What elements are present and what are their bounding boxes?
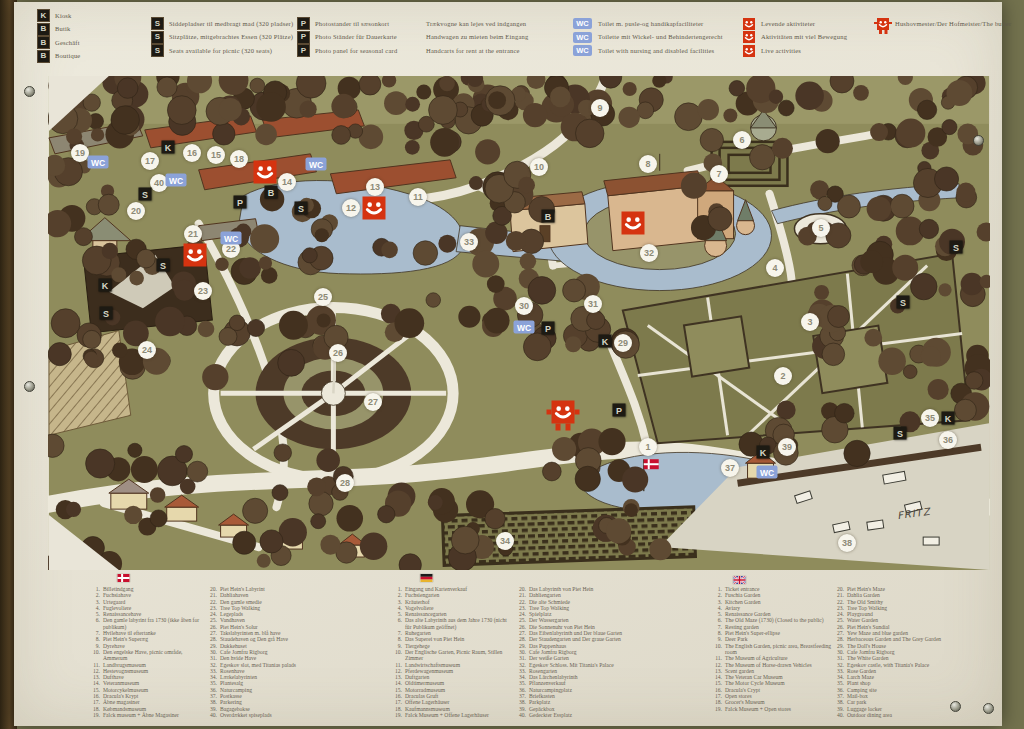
item-number: 6. [86,617,100,630]
screw [973,135,984,146]
butler-figure-icon [877,18,889,30]
legend-list-item: 40.Outdoor dining area [830,712,962,718]
smiley-activity-icon [743,45,755,57]
park-map-illustration [48,76,990,570]
item-number: 6. [388,617,402,630]
legend-label: Siddepladser til medbragt mad (320 plads… [169,21,293,28]
legend-row: PPhotostander til sæsonkort [298,17,397,31]
legend-row: Aktivitäten mit viel Bewegung [743,31,847,45]
legend-label: Live activities [761,48,801,55]
screw [950,701,961,712]
item-number: 40. [512,712,526,718]
smiley-activity-icon [743,31,755,43]
legend-label: Levende aktiviteter [761,21,815,28]
photographed-info-board: KKioskBButikBGeschäftBBoutique SSiddepla… [0,0,1024,729]
photo-icon: P [298,18,309,29]
legend-list-item: 10.The English Garden, picnic area, Brea… [708,643,834,656]
legend-row: WCToilette mit Wickel- und Behindertenge… [573,31,723,45]
legend-label: Butik [55,26,70,33]
shop-icon: B [38,24,49,35]
item-label: Outdoor dining area [847,712,892,718]
legend-row: BGeschäft [38,36,80,50]
shop-icon: B [38,51,49,62]
legend-list-item: 6.Das alte Labyrinth aus dem Jahre 1730 … [388,617,510,630]
item-number: 19. [708,706,722,712]
legend-list-item: 40.Gedeckter Essplatz [512,712,642,718]
legend-group-photo: PPhotostander til sæsonkortPPhoto Stände… [298,17,397,58]
legend-row: Handwagen zu mieten beim Eingang [420,31,528,45]
legend-row: BBoutique [38,50,80,64]
map-artwork [48,76,990,570]
seats-icon: S [152,18,163,29]
legend-label: Toilette mit Wickel- und Behindertengere… [598,34,723,41]
legend-label: Handwagen zu mieten beim Eingang [426,34,528,41]
uk-flag-icon [733,576,746,584]
screw [24,86,35,97]
legend-list-english-1-19: 1.Ticket entrance2.Fuschia Garden3.Kitch… [708,586,834,712]
legend-label: Photo Ständer für Dauerkarte [315,34,397,41]
legend-row-butler: Hushovmester/Der Hofmeister/The butler [877,17,1011,31]
legend-row: Handcarts for rent at the entrance [420,44,528,58]
wc-icon: WC [573,45,592,56]
photo-icon: P [298,45,309,56]
item-label: Den gamle labyrint fra 1730 (ikke åben f… [103,617,204,630]
legend-group-handcarts: Trækvogne kan lejes ved indgangenHandwag… [420,17,528,58]
legend-label: Seats available for picnic (320 seats) [169,48,272,55]
legend-list-item: 10.Den engelske Have, picnic område, Amm… [86,649,204,662]
legend-label: Photostander til sæsonkort [315,21,389,28]
item-number: 19. [388,712,402,718]
item-number: 10. [708,643,722,656]
legend-group-wc: WCToilet m. pusle-og handikapfaciliteter… [573,17,723,58]
legend-row: Levende aktiviteter [743,17,847,31]
smiley-activity-icon [743,18,755,30]
seats-icon: S [152,32,163,43]
item-number: 10. [86,649,100,662]
legend-label: Trækvogne kan lejes ved indgangen [426,21,526,28]
legend-label: Toilet with nursing and disabled facilit… [598,48,714,55]
item-number: 40. [830,712,844,718]
legend-row: Trækvogne kan lejes ved indgangen [420,17,528,31]
legend-label: Kiosk [55,13,72,20]
item-number: 10. [388,649,402,662]
legend-row: PPhoto Ständer für Dauerkarte [298,31,397,45]
legend-group-butler: Hushovmester/Der Hofmeister/The butler [877,17,1011,31]
legend-list-danish-20-40: 20.Piet Hein's Labyrint21.Dahliahaven22.… [203,586,331,718]
item-label: Den engelske Have, picnic område, Ammeru… [103,649,204,662]
screw [24,381,35,392]
seats-icon: S [152,45,163,56]
wc-icon: WC [573,18,592,29]
legend-label: Sitzplätze, mitgebrachtes Essen (320 Plä… [169,34,293,41]
legend-list-item: 10.Der Englische Garten, Picnic Raum, St… [388,649,510,662]
item-label: Falck Museum + Open stores [725,706,791,712]
item-number: 40. [203,712,217,718]
legend-label: Boutique [55,53,80,60]
legend-label: Geschäft [55,40,80,47]
legend-row: BButik [38,23,80,37]
legend-row: KKiosk [38,9,80,23]
legend-label: Toilet m. pusle-og handikapfaciliteter [598,21,703,28]
legend-list-german-20-40: 20.Das Labyrinth von Piet Hein21.Dahlien… [512,586,642,718]
legend-list-item: 19.Falck Museum + Open stores [708,706,834,712]
legend-list-english-20-40: 20.Piet Hein's Maze21.Dahlia Garden22.Th… [830,586,962,718]
legend-list-danish-1-19: 1.Billetindgang2.Fuchsiahave3.Urtegaard4… [86,586,204,718]
legend-list-item: 19.Falck museum + Åbne Magasiner [86,712,204,718]
legend-row: WCToilet with nursing and disabled facil… [573,44,723,58]
kiosk-icon: K [38,10,49,21]
item-label: The English Garden, picnic area, Breastf… [725,643,834,656]
item-label: Der Englische Garten, Picnic Raum, Still… [405,649,510,662]
legend-row: SSiddepladser til medbragt mad (320 plad… [152,17,293,31]
item-label: Das alte Labyrinth aus dem Jahre 1730 (n… [405,617,510,630]
screw [983,703,994,714]
legend-row: PPhoto panel for seasonal card [298,44,397,58]
item-label: Falck museum + Åbne Magasiner [103,712,179,718]
legend-label: Hushovmester/Der Hofmeister/The butler [895,21,1011,28]
legend-list-item: 6.Den gamle labyrint fra 1730 (ikke åben… [86,617,204,630]
danish-flag-icon [117,574,130,582]
legend-label: Handcarts for rent at the entrance [426,48,520,55]
legend-row: WCToilet m. pusle-og handikapfaciliteter [573,17,723,31]
item-number: 19. [86,712,100,718]
legend-label: Photo panel for seasonal card [315,48,397,55]
german-flag-icon [420,574,433,582]
item-label: Overdækket spiseplads [220,712,272,718]
item-label: Falck Museum + Offene Lagerhäuser [405,712,489,718]
legend-group-shop: KKioskBButikBGeschäftBBoutique [38,9,80,63]
item-label: Gedeckter Essplatz [529,712,572,718]
legend-list-item: 19.Falck Museum + Offene Lagerhäuser [388,712,510,718]
legend-group-activities: Levende aktiviteterAktivitäten mit viel … [743,17,847,58]
legend-list-item: 40.Overdækket spiseplads [203,712,331,718]
photo-icon: P [298,32,309,43]
legend-group-seats: SSiddepladser til medbragt mad (320 plad… [152,17,293,58]
legend-row: SSitzplätze, mitgebrachtes Essen (320 Pl… [152,31,293,45]
legend-row: SSeats available for picnic (320 seats) [152,44,293,58]
legend-label: Aktivitäten mit viel Bewegung [761,34,847,41]
legend-list-german-1-19: 1.Eingang und Kartenverkauf2.Fuchsiengar… [388,586,510,718]
wc-icon: WC [573,32,592,43]
shop-icon: B [38,37,49,48]
legend-row: Live activities [743,44,847,58]
